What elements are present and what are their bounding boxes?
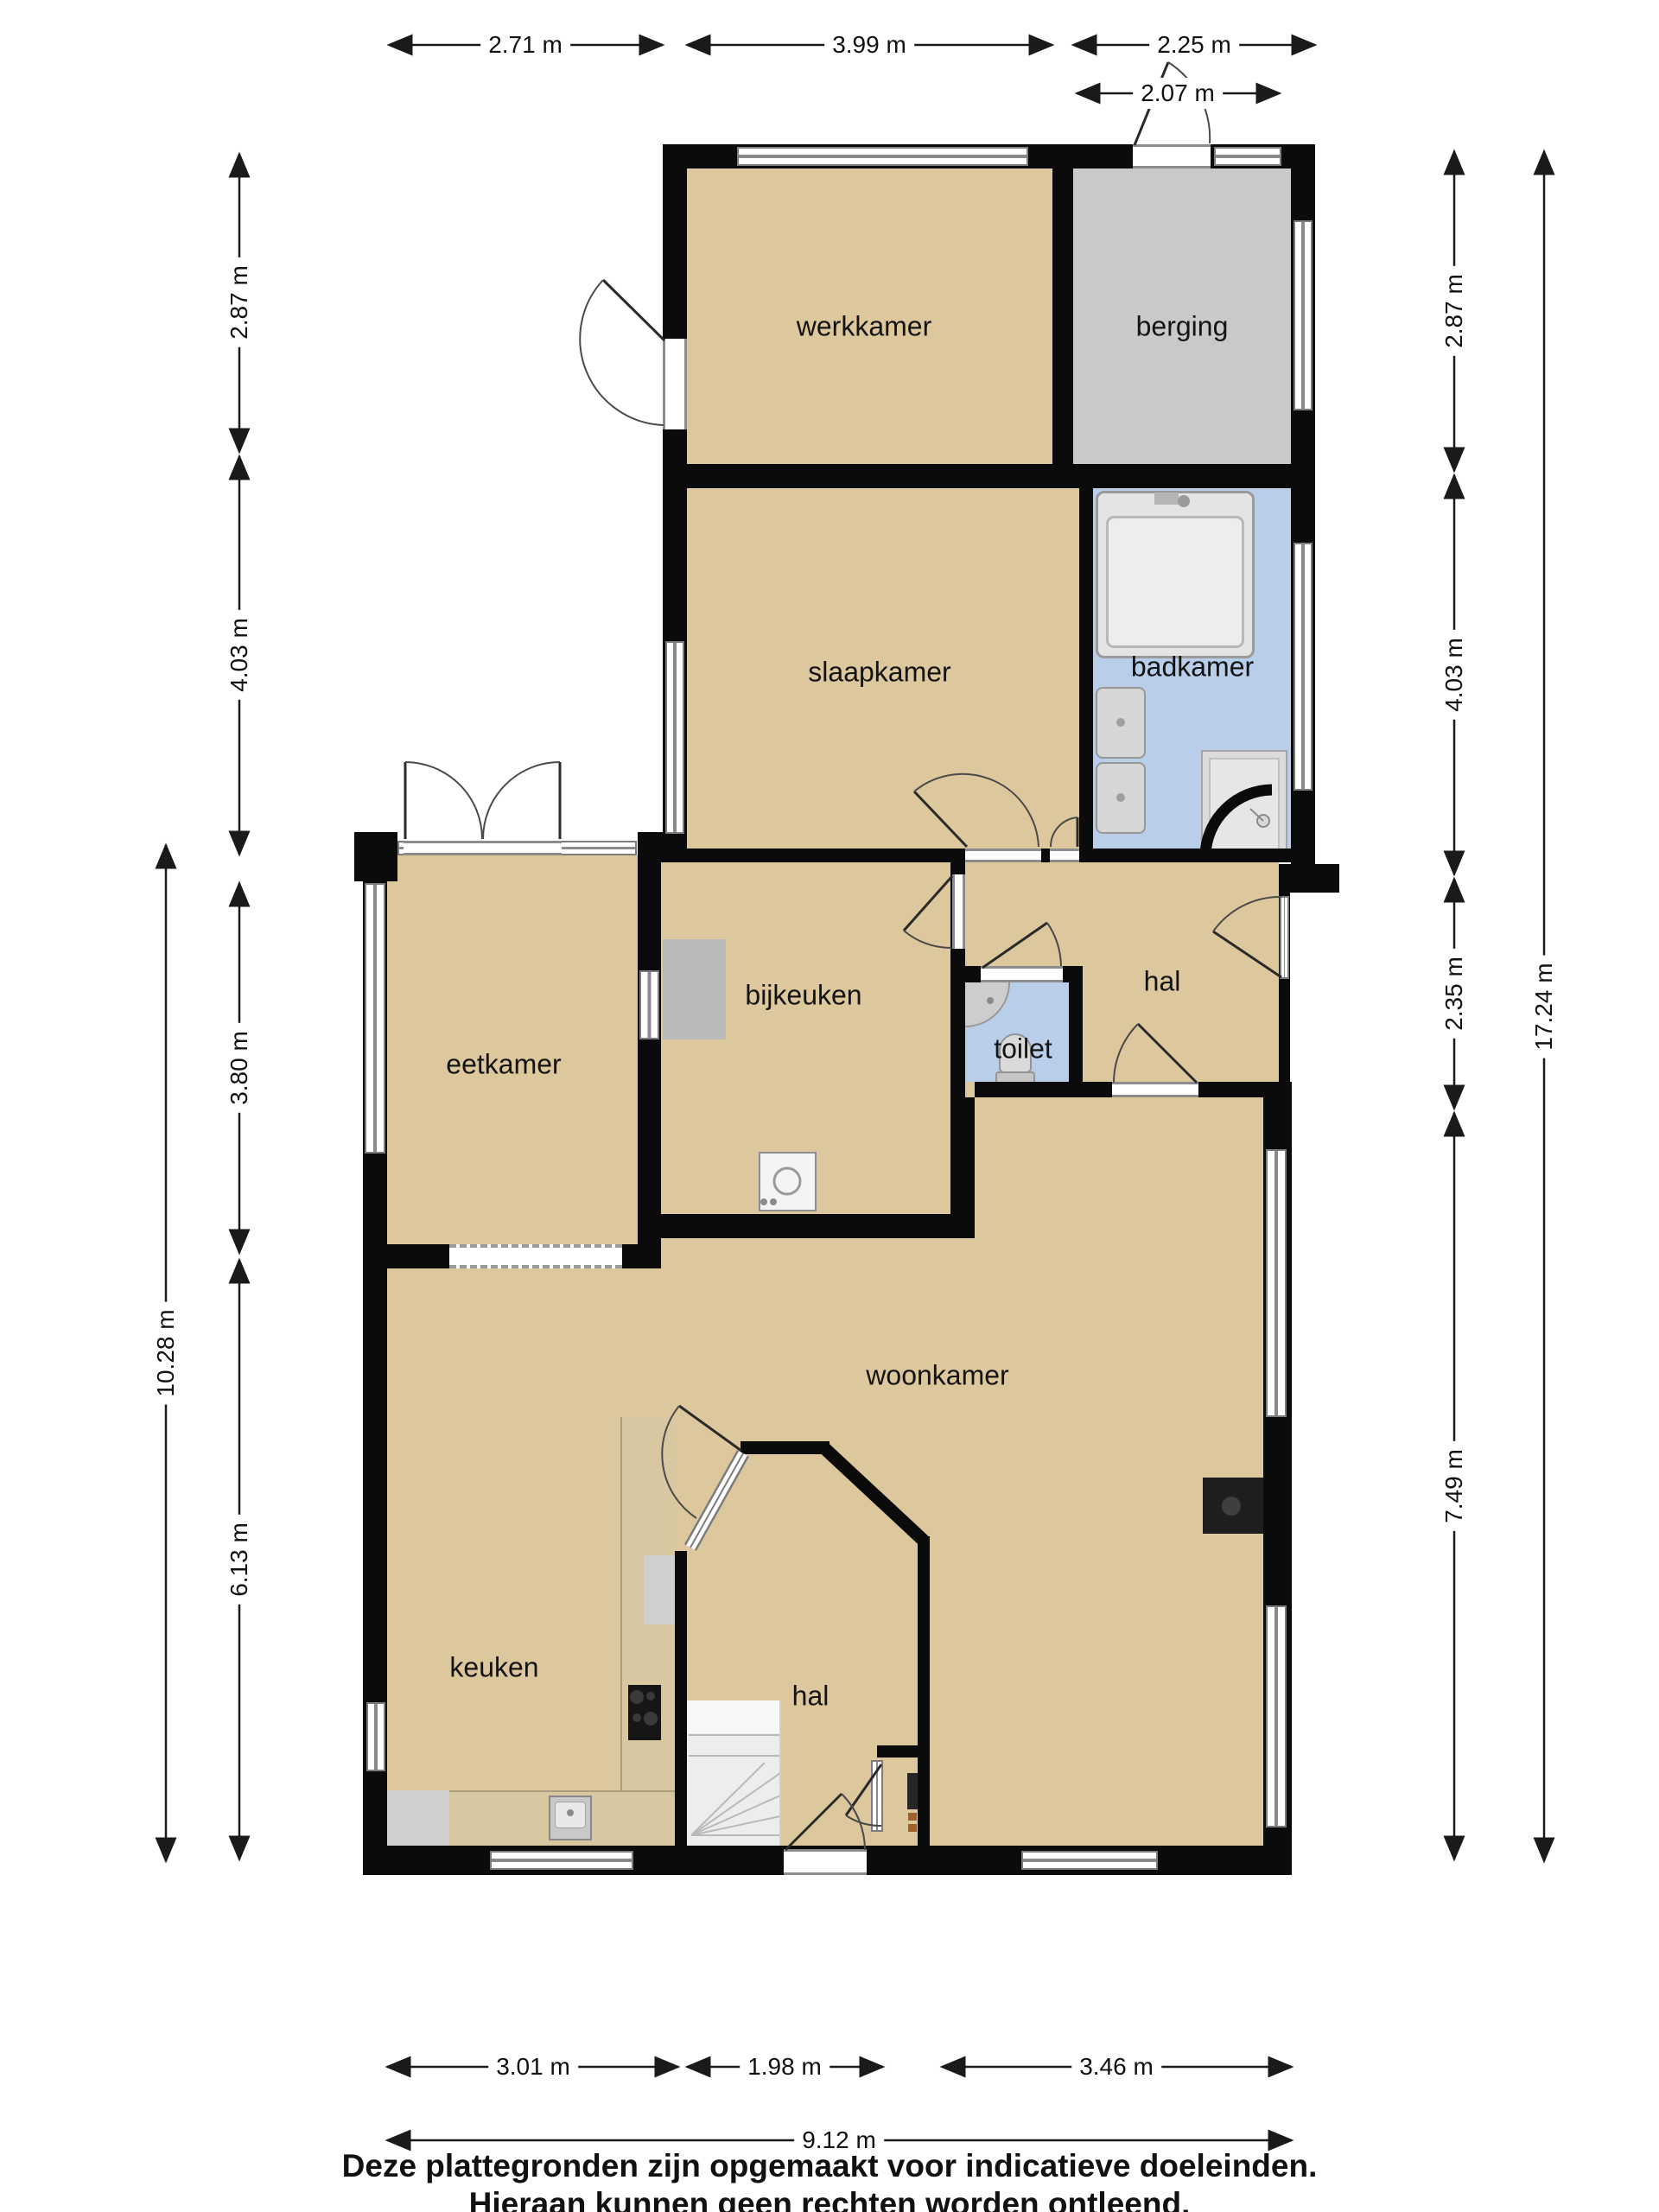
dim-top-1: 2.71 m (480, 29, 570, 60)
floorplan-canvas: werkkamer berging slaapkamer badkamer ee… (0, 0, 1659, 2212)
room-label-bijkeuken: bijkeuken (745, 980, 861, 1012)
room-label-berging: berging (1136, 311, 1229, 343)
room-label-eetkamer: eetkamer (446, 1049, 561, 1081)
dim-left-2: 4.03 m (224, 610, 255, 700)
dim-bottom-1: 3.01 m (488, 2051, 578, 2082)
room-label-slaapkamer: slaapkamer (808, 657, 950, 689)
dim-top-sub: 2.07 m (1133, 78, 1223, 109)
dim-right-2: 4.03 m (1439, 630, 1470, 720)
dim-top-3: 2.25 m (1149, 29, 1239, 60)
room-label-woonkamer: woonkamer (866, 1360, 1008, 1392)
dim-right-1: 2.87 m (1439, 266, 1470, 356)
room-label-hal-onder: hal (792, 1681, 829, 1713)
dim-right-total: 17.24 m (1529, 955, 1560, 1058)
dim-left-3: 3.80 m (224, 1023, 255, 1113)
dim-left-4: 6.13 m (224, 1515, 255, 1605)
room-label-badkamer: badkamer (1131, 652, 1254, 683)
label-layer: werkkamer berging slaapkamer badkamer ee… (0, 0, 1659, 2212)
dim-bottom-3: 3.46 m (1071, 2051, 1161, 2082)
room-label-keuken: keuken (449, 1652, 538, 1684)
dim-bottom-2: 1.98 m (740, 2051, 829, 2082)
room-label-toilet: toilet (994, 1033, 1052, 1065)
room-label-hal-boven: hal (1144, 966, 1181, 998)
dim-right-3: 2.35 m (1439, 949, 1470, 1039)
dim-top-2: 3.99 m (824, 29, 914, 60)
dim-left-total: 10.28 m (150, 1301, 181, 1404)
dim-bottom-total: 9.12 m (794, 2125, 884, 2156)
dim-right-4: 7.49 m (1439, 1441, 1470, 1531)
room-label-werkkamer: werkkamer (797, 311, 931, 343)
dim-left-1: 2.87 m (224, 257, 255, 347)
disclaimer-line-2: Hieraan kunnen geen rechten worden ontle… (0, 2186, 1659, 2212)
